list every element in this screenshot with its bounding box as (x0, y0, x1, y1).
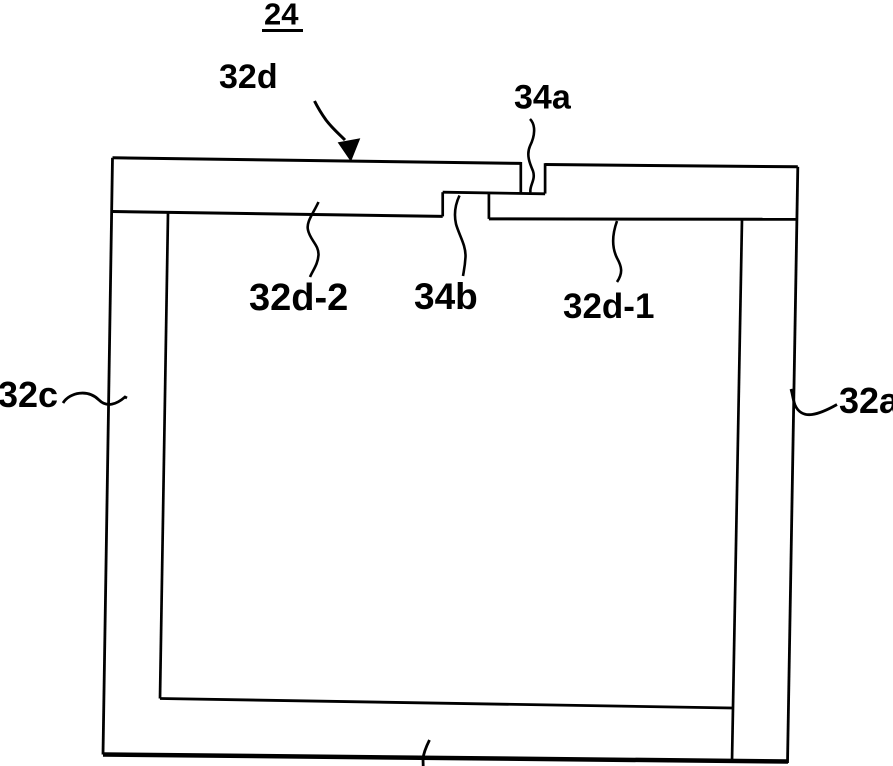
svg-text:34b: 34b (414, 276, 478, 317)
svg-text:32d-2: 32d-2 (249, 277, 348, 319)
svg-text:34a: 34a (514, 79, 572, 117)
svg-text:32a: 32a (839, 380, 893, 421)
svg-text:32d-1: 32d-1 (563, 287, 654, 326)
svg-text:32d: 32d (219, 58, 278, 96)
svg-text:24: 24 (264, 0, 299, 32)
svg-text:32c: 32c (0, 374, 58, 415)
